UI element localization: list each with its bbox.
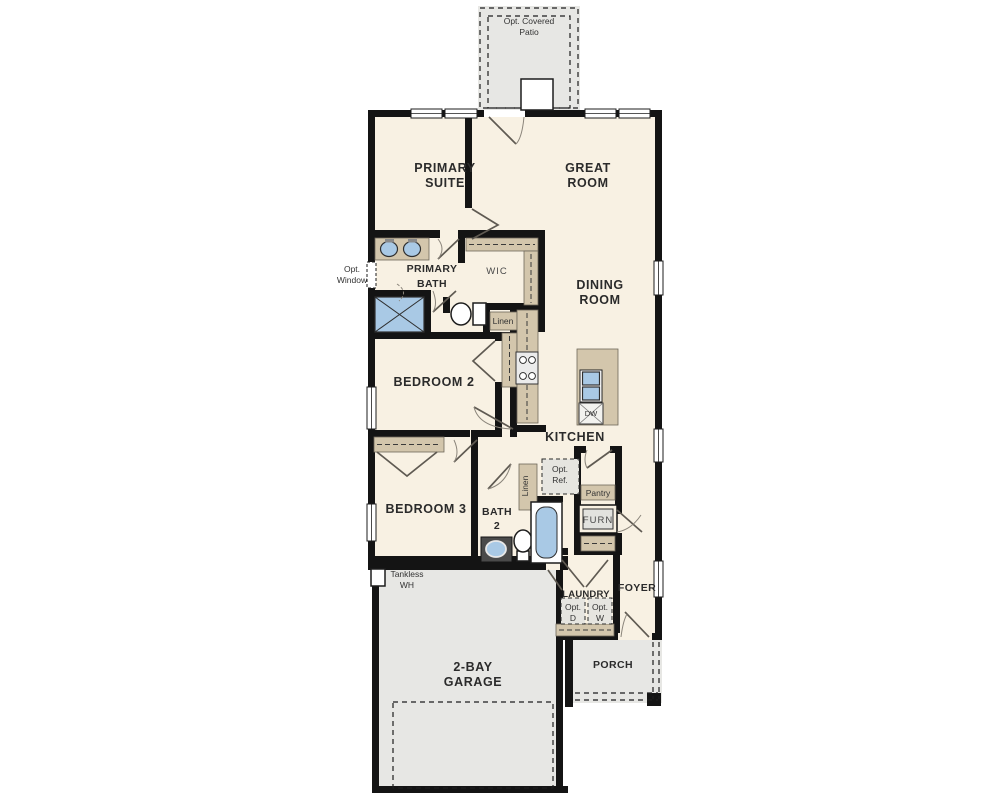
- sink-icon: [381, 242, 398, 257]
- patio-door-panel: [521, 79, 553, 110]
- wall-segment: [368, 430, 470, 437]
- bath2-label: 2: [494, 520, 500, 532]
- patio-door-opening: [484, 110, 525, 117]
- wall-segment: [615, 446, 622, 504]
- garage-label: GARAGE: [444, 675, 502, 689]
- primary-bath-label: PRIMARY: [407, 263, 458, 275]
- garage-label: 2-BAY: [453, 660, 492, 674]
- wall-segment: [372, 786, 568, 793]
- linen-label: Linen: [493, 316, 514, 326]
- opt-washer-label: Opt.: [592, 602, 608, 612]
- opt-dryer-label: Opt.: [565, 602, 581, 612]
- opt-window: [367, 262, 376, 288]
- bath2-label: BATH: [482, 506, 512, 518]
- wall-segment: [510, 425, 546, 432]
- door-opening: [495, 341, 502, 382]
- shower-icon: [375, 297, 424, 332]
- bath2-vanity: [481, 537, 512, 562]
- faucet-icon: [385, 239, 394, 243]
- opt-window-label: Opt.: [344, 264, 360, 274]
- primary-bath-label: BATH: [417, 278, 447, 290]
- wall-segment: [574, 446, 586, 453]
- pantry-label: Pantry: [586, 488, 611, 498]
- sink-icon: [404, 242, 421, 257]
- bathtub-icon: [531, 502, 562, 563]
- porch-label: PORCH: [593, 659, 633, 671]
- great-room-label: GREAT: [565, 161, 611, 175]
- wall-segment: [538, 238, 545, 332]
- bedroom3-label: BEDROOM 3: [385, 502, 466, 516]
- laundry-label: LAUNDRY: [562, 589, 610, 600]
- furnace-label: FURN: [583, 515, 613, 526]
- floor-plan-drawing: Opt. Covered Patio PRIMARY SUITE GREAT R…: [0, 0, 1000, 800]
- wall-segment: [424, 290, 431, 339]
- wall-segment: [368, 230, 440, 238]
- range-icon: [516, 352, 538, 384]
- wall-segment: [565, 633, 573, 707]
- sink-icon: [486, 541, 506, 557]
- wall-segment: [458, 230, 545, 238]
- wall-segment: [368, 290, 428, 297]
- great-room-label: ROOM: [567, 176, 608, 190]
- island-sink-icon: [580, 370, 602, 402]
- wall-segment: [574, 537, 581, 553]
- wall-segment: [610, 446, 622, 453]
- opt-window-label: Window: [337, 275, 368, 285]
- kitchen-label: KITCHEN: [545, 430, 605, 444]
- bedroom2-label: BEDROOM 2: [393, 375, 474, 389]
- wall-segment: [372, 563, 379, 793]
- patio-label: Patio: [519, 27, 539, 37]
- primary-suite-label: PRIMARY: [414, 161, 475, 175]
- patio-label: Opt. Covered: [504, 16, 555, 26]
- faucet-icon: [408, 239, 417, 243]
- wall-segment: [652, 633, 662, 640]
- tankless-wh-label: WH: [400, 580, 414, 590]
- wall-segment: [368, 332, 517, 339]
- wall-segment: [471, 430, 478, 563]
- opt-ref-label: Ref.: [552, 475, 568, 485]
- dining-room-label: DINING: [576, 278, 623, 292]
- foyer-label: FOYER: [618, 582, 656, 594]
- opt-dryer-label: D: [570, 613, 576, 623]
- opt-washer-label: W: [596, 613, 604, 623]
- primary-suite-label: SUITE: [425, 176, 465, 190]
- dining-room-label: ROOM: [579, 293, 620, 307]
- floor-plan-canvas: Opt. Covered Patio PRIMARY SUITE GREAT R…: [0, 0, 1000, 800]
- dishwasher-label: DW: [585, 409, 598, 418]
- linen-label: Linen: [520, 475, 530, 496]
- opt-ref-label: Opt.: [552, 464, 568, 474]
- wic-label: WIC: [486, 266, 507, 277]
- toilet-icon: [514, 530, 532, 561]
- tankless-wh-label: Tankless: [390, 569, 423, 579]
- wall-segment: [458, 238, 465, 263]
- toilet-icon: [451, 303, 486, 325]
- tankless-water-heater-icon: [371, 569, 385, 586]
